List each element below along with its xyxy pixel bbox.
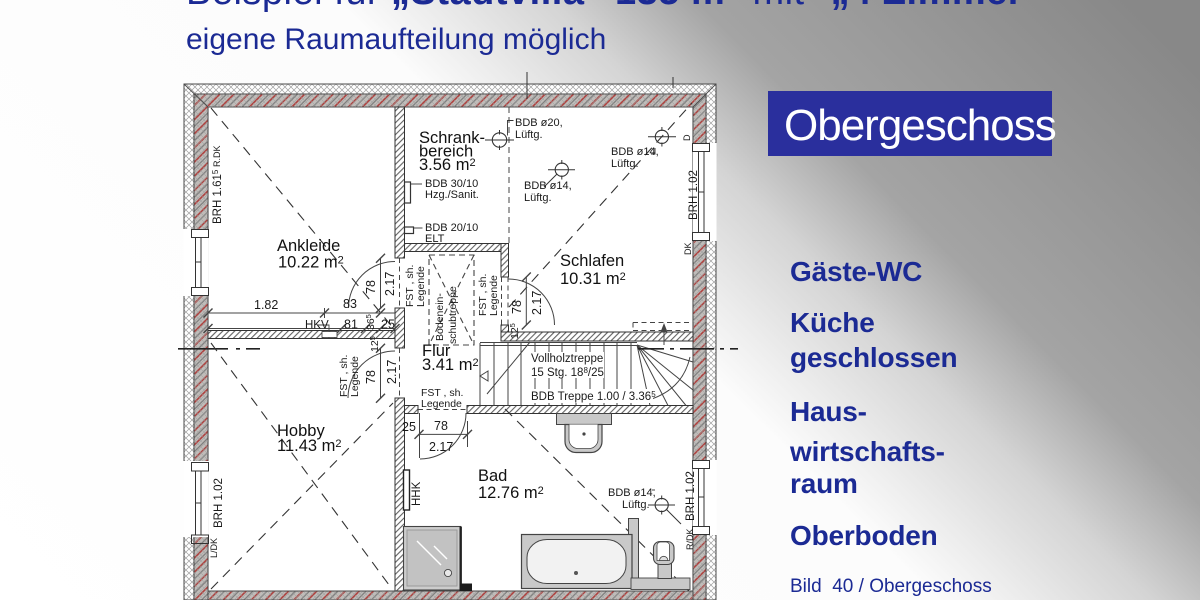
svg-text:L/DK: L/DK bbox=[209, 538, 219, 558]
svg-text:ELT: ELT bbox=[425, 233, 445, 245]
svg-text:Legende: Legende bbox=[488, 275, 500, 316]
svg-text:BDB Treppe 1.00 / 3.365: BDB Treppe 1.00 / 3.365 bbox=[531, 390, 656, 403]
svg-text:Legende: Legende bbox=[349, 356, 361, 397]
svg-text:HKV: HKV bbox=[305, 320, 329, 332]
svg-text:BRH 1.02: BRH 1.02 bbox=[688, 170, 700, 220]
svg-text:BRH 1.02: BRH 1.02 bbox=[685, 471, 697, 521]
svg-text:BDB ø14,: BDB ø14, bbox=[608, 487, 656, 499]
svg-text:Legende: Legende bbox=[421, 398, 462, 410]
svg-text:Bodenein-: Bodenein- bbox=[434, 293, 446, 341]
svg-text:schubtreppe: schubtreppe bbox=[447, 286, 459, 344]
svg-text:BRH 1.615: BRH 1.615 bbox=[211, 169, 224, 224]
svg-text:HHK: HHK bbox=[411, 481, 423, 506]
svg-text:Lüftg.: Lüftg. bbox=[622, 499, 650, 511]
svg-text:10.31 m2: 10.31 m2 bbox=[560, 270, 626, 288]
svg-text:25: 25 bbox=[381, 318, 395, 332]
svg-text:Schlafen: Schlafen bbox=[560, 252, 624, 270]
svg-text:R/DK: R/DK bbox=[685, 528, 695, 550]
svg-text:2.17: 2.17 bbox=[530, 291, 544, 315]
svg-text:83: 83 bbox=[343, 297, 357, 311]
svg-text:Hzg./Sanit.: Hzg./Sanit. bbox=[425, 189, 479, 201]
svg-text:3.56 m2: 3.56 m2 bbox=[419, 156, 476, 174]
svg-text:25: 25 bbox=[402, 420, 416, 434]
svg-text:2.17: 2.17 bbox=[429, 440, 453, 454]
svg-text:81: 81 bbox=[344, 318, 358, 332]
svg-text:Legende: Legende bbox=[415, 266, 427, 307]
svg-text:D: D bbox=[682, 134, 692, 141]
svg-text:Vollholztreppe: Vollholztreppe bbox=[531, 353, 603, 365]
svg-text:11.43 m2: 11.43 m2 bbox=[277, 437, 342, 455]
svg-text:Ankleide: Ankleide bbox=[277, 237, 340, 255]
svg-text:Lüftg.: Lüftg. bbox=[611, 158, 639, 170]
svg-text:3.41 m2: 3.41 m2 bbox=[422, 356, 479, 374]
svg-text:R.DK: R.DK bbox=[212, 145, 222, 167]
svg-text:BDB ø14,: BDB ø14, bbox=[524, 180, 572, 192]
svg-text:2.17: 2.17 bbox=[383, 272, 397, 296]
svg-text:2.17: 2.17 bbox=[385, 360, 399, 384]
svg-text:78: 78 bbox=[510, 300, 524, 314]
svg-text:BRH 1.02: BRH 1.02 bbox=[213, 478, 225, 528]
svg-text:10.22 m2: 10.22 m2 bbox=[278, 254, 344, 272]
svg-text:1.82: 1.82 bbox=[254, 298, 278, 312]
svg-text:12.76 m2: 12.76 m2 bbox=[478, 484, 544, 502]
svg-text:Lüftg.: Lüftg. bbox=[524, 192, 552, 204]
svg-text:BDB ø14,: BDB ø14, bbox=[611, 146, 659, 158]
svg-text:78: 78 bbox=[434, 419, 448, 433]
svg-text:78: 78 bbox=[364, 280, 378, 294]
svg-text:78: 78 bbox=[364, 370, 378, 384]
svg-text:DK: DK bbox=[683, 242, 693, 255]
svg-text:Lüftg.: Lüftg. bbox=[515, 129, 543, 141]
svg-text:Bad: Bad bbox=[478, 467, 507, 485]
svg-text:BDB ø20,: BDB ø20, bbox=[515, 117, 563, 129]
svg-text:15 Stg. 188/25: 15 Stg. 188/25 bbox=[531, 366, 604, 379]
